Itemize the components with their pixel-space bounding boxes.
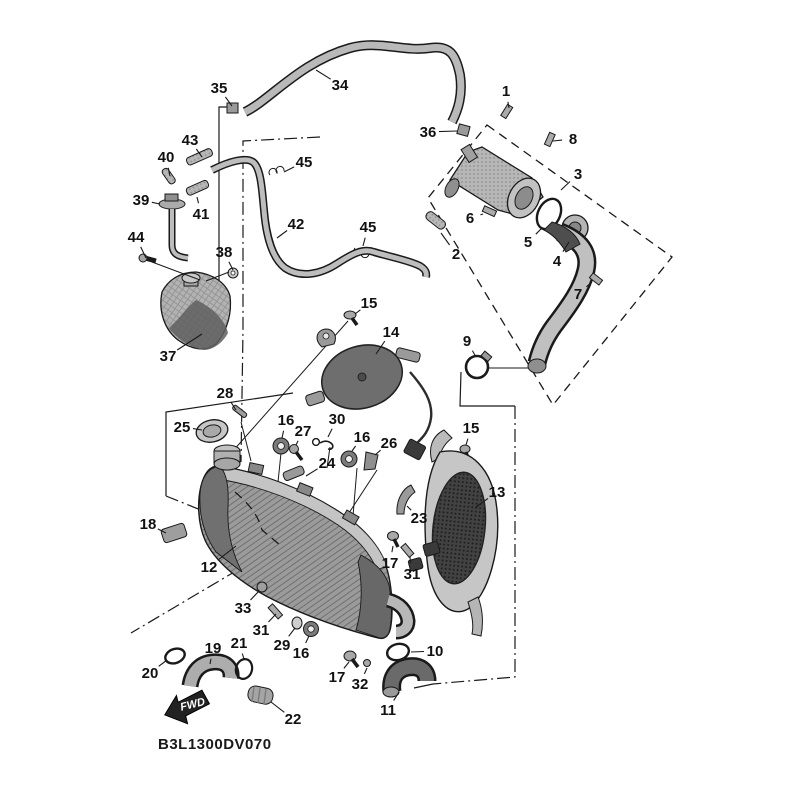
washer-29: [292, 617, 302, 629]
callout-33: 33: [235, 591, 259, 617]
callout-number-45: 45: [360, 219, 377, 236]
callout-number-5: 5: [524, 234, 532, 251]
part-code-text: B3L1300DV070: [158, 736, 272, 753]
callout-15: 15: [355, 295, 377, 314]
callout-number-11: 11: [380, 702, 396, 719]
leader-line-2: [441, 233, 450, 245]
leader-line-15: [355, 310, 360, 314]
callout-38: 38: [216, 244, 233, 270]
callout-30: 30: [328, 411, 345, 437]
leader-line-36: [439, 131, 457, 132]
bolt-8: [544, 132, 555, 146]
callout-number-23: 23: [411, 510, 428, 527]
callout-22: 22: [271, 702, 301, 728]
bolt-17b-shaft: [394, 539, 398, 547]
hose-joint-43: [185, 148, 213, 166]
callout-number-1: 1: [502, 83, 510, 100]
callout-20: 20: [142, 660, 167, 682]
leader-line-24: [306, 469, 318, 476]
leader-line-17: [344, 662, 349, 668]
grommet-38-hole: [231, 271, 235, 275]
callout-number-45: 45: [296, 154, 313, 171]
clip-30a: [313, 439, 320, 446]
callout-28: 28: [217, 385, 236, 410]
leader-line-3: [561, 182, 570, 191]
bolt-17a-shaft: [352, 659, 358, 667]
pad-24: [282, 465, 305, 481]
leader-line-29: [289, 628, 295, 636]
screw-32: [364, 660, 371, 667]
fan-hub: [358, 373, 366, 381]
callout-number-29: 29: [274, 637, 291, 654]
leader-line-32: [364, 668, 367, 674]
clamp-36: [457, 124, 470, 137]
callout-number-20: 20: [142, 665, 159, 682]
fwd-arrow: FWD: [161, 688, 213, 728]
bolt-31a: [268, 604, 282, 619]
callout-16: 16: [293, 636, 310, 662]
callout-36: 36: [420, 124, 457, 141]
callout-number-15: 15: [463, 420, 480, 437]
callout-9: 9: [463, 333, 476, 357]
callout-1: 1: [502, 83, 510, 108]
callout-number-4: 4: [553, 253, 562, 270]
callout-number-37: 37: [160, 348, 177, 365]
callout-number-42: 42: [288, 216, 305, 233]
leader-line-16: [352, 446, 356, 451]
clamp9-connector-solid: [460, 372, 515, 406]
callout-number-13: 13: [489, 484, 506, 501]
callout-5: 5: [524, 228, 542, 251]
callout-number-16: 16: [293, 645, 310, 662]
callout-number-34: 34: [332, 77, 349, 94]
callout-number-32: 32: [352, 676, 369, 693]
callout-45: 45: [360, 219, 377, 246]
callout-number-33: 33: [235, 600, 252, 617]
callout-43: 43: [182, 132, 202, 157]
bolt-27-shaft: [296, 452, 302, 460]
callout-number-17: 17: [329, 669, 346, 686]
leader-line-31: [410, 557, 411, 563]
callout-number-16: 16: [278, 412, 295, 429]
bolt-17b-head: [388, 532, 399, 541]
parts-diagram-page: FWD B3L1300DV070 35341368343404539414438…: [0, 0, 800, 800]
sleeve-22: [247, 685, 275, 706]
fan-bracket-bottom: [305, 390, 326, 406]
leader-line-20: [159, 660, 167, 666]
damper-18: [160, 523, 187, 544]
callout-16: 16: [278, 412, 295, 438]
callout-number-41: 41: [193, 206, 210, 223]
callout-number-27: 27: [295, 423, 312, 440]
leader-line-42: [277, 231, 287, 239]
callout-number-31: 31: [404, 566, 421, 583]
leader-line-30: [328, 429, 332, 437]
callout-15: 15: [463, 420, 480, 445]
callout-number-40: 40: [158, 149, 175, 166]
clip-30b: [320, 441, 333, 449]
leader-line-41: [197, 197, 199, 203]
duct-13-leg: [468, 597, 482, 636]
leader-line-15: [466, 439, 468, 445]
leader-line-8: [553, 140, 562, 141]
filler-neck-base: [214, 458, 240, 470]
callout-number-14: 14: [383, 324, 400, 341]
callout-number-31: 31: [253, 622, 270, 639]
callout-number-35: 35: [211, 80, 228, 97]
bolt-15a-shaft: [352, 318, 357, 325]
clamp-35: [227, 103, 238, 113]
callout-number-44: 44: [128, 229, 145, 246]
grommet-16b-hole: [346, 456, 353, 463]
callout-number-28: 28: [217, 385, 234, 402]
callout-8: 8: [553, 131, 577, 148]
clamp-9-screw: [481, 351, 492, 361]
fan-wire-connector: [403, 439, 426, 461]
leader-line-17: [392, 546, 393, 552]
callout-number-24: 24: [319, 455, 336, 472]
leader-line-16: [282, 431, 284, 438]
callout-23: 23: [407, 506, 427, 527]
callout-34: 34: [316, 70, 349, 94]
callout-number-3: 3: [574, 166, 582, 183]
callout-3: 3: [561, 166, 582, 190]
callout-2: 2: [441, 233, 460, 263]
bracket26-leader: [347, 470, 377, 516]
callout-45: 45: [284, 154, 312, 172]
clamp-20: [163, 646, 187, 666]
leader-line-5: [536, 228, 542, 234]
leader-line-10: [411, 652, 424, 653]
callout-39: 39: [133, 192, 160, 209]
callout-17: 17: [382, 546, 399, 572]
clip-45a: [269, 166, 284, 175]
callout-number-8: 8: [569, 131, 577, 148]
callout-number-18: 18: [140, 516, 157, 533]
callout-32: 32: [352, 668, 369, 693]
bolt-31b: [401, 543, 414, 557]
callout-number-39: 39: [133, 192, 150, 209]
grommet-16a-hole: [278, 443, 285, 450]
hose-joint-41: [185, 179, 209, 196]
callout-31: 31: [253, 614, 276, 639]
callout-35: 35: [211, 80, 232, 106]
callout-number-36: 36: [420, 124, 437, 141]
callout-number-2: 2: [452, 246, 460, 263]
pipe-joint-2: [424, 210, 447, 231]
callout-number-38: 38: [216, 244, 233, 261]
leader-line-16: [306, 636, 309, 643]
callout-number-16: 16: [354, 429, 371, 446]
callout-17: 17: [329, 662, 349, 686]
callout-24: 24: [306, 455, 336, 476]
leader-line-45: [363, 238, 365, 246]
callout-number-19: 19: [205, 640, 222, 657]
bolt-15a-head: [344, 311, 356, 319]
callout-number-15: 15: [361, 295, 378, 312]
elbow-connector: [414, 684, 433, 688]
bolt-15b-head: [460, 445, 470, 453]
pipe-3-end: [528, 359, 546, 373]
leader-line-45: [284, 167, 294, 172]
callout-26: 26: [375, 435, 397, 455]
callout-number-7: 7: [574, 286, 582, 303]
reservoir-tank-group: [139, 254, 238, 350]
callout-42: 42: [277, 216, 304, 238]
callout-number-6: 6: [466, 210, 474, 227]
hose-34-outline: [245, 45, 461, 122]
callout-16: 16: [352, 429, 370, 451]
callout-number-10: 10: [427, 643, 444, 660]
fan-wire: [410, 372, 431, 443]
callout-number-30: 30: [329, 411, 346, 428]
callout-number-9: 9: [463, 333, 471, 350]
bolt-1: [501, 104, 513, 118]
joint-39-top: [165, 194, 178, 201]
callout-number-26: 26: [381, 435, 398, 452]
leader-line-22: [271, 702, 284, 712]
nut-33: [257, 582, 267, 592]
callout-number-22: 22: [285, 711, 302, 728]
callout-number-12: 12: [201, 559, 218, 576]
leader-line-27: [296, 441, 298, 445]
callout-4: 4: [553, 242, 569, 270]
callout-21: 21: [231, 635, 248, 659]
callout-number-17: 17: [382, 555, 399, 572]
callout-41: 41: [193, 197, 210, 223]
diagram-artwork: FWD B3L1300DV070 35341368343404539414438…: [0, 0, 800, 800]
callout-number-21: 21: [231, 635, 248, 652]
hose-34-group: [227, 45, 470, 136]
hose-42: [212, 160, 426, 277]
callout-18: 18: [140, 516, 166, 533]
fan-bracket-hole: [323, 333, 329, 339]
callout-27: 27: [295, 423, 312, 445]
callout-number-25: 25: [174, 419, 191, 436]
leader-line-33: [251, 591, 260, 600]
callout-6: 6: [466, 210, 483, 227]
leader-line-21: [242, 654, 244, 660]
leader-line-6: [481, 214, 484, 215]
callout-number-43: 43: [182, 132, 199, 149]
leader-line-31: [269, 614, 277, 622]
grommet-16c-hole: [308, 626, 314, 632]
pin28-leader: [241, 422, 251, 461]
leader-line-34: [316, 70, 331, 79]
